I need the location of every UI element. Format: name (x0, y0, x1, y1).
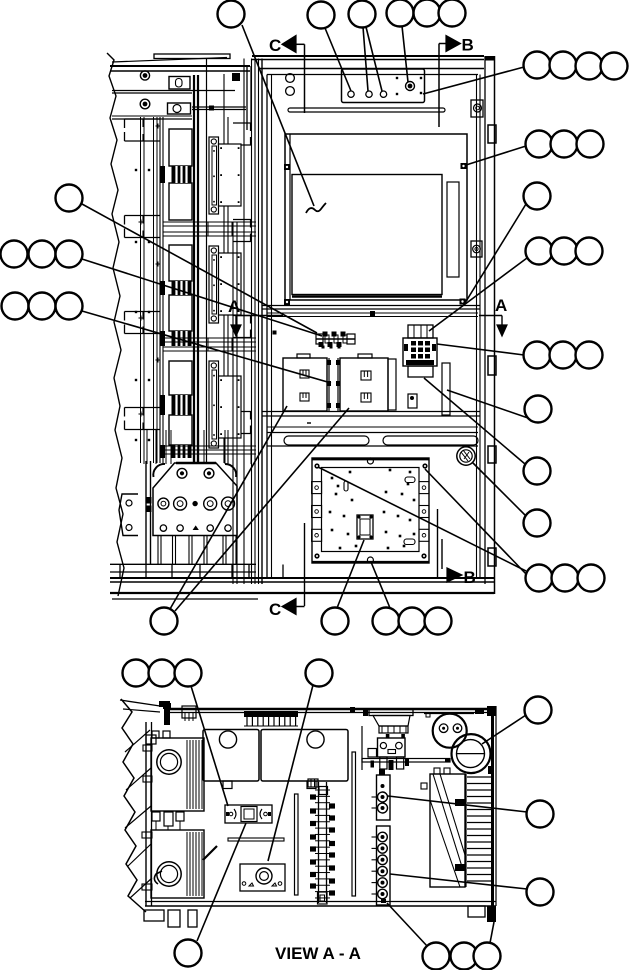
svg-text:A: A (495, 296, 507, 315)
svg-text:C: C (269, 36, 281, 55)
svg-text:B: B (462, 36, 474, 55)
svg-text:VIEW A - A: VIEW A - A (275, 944, 361, 963)
svg-text:B: B (464, 568, 476, 587)
svg-text:C: C (269, 600, 281, 619)
